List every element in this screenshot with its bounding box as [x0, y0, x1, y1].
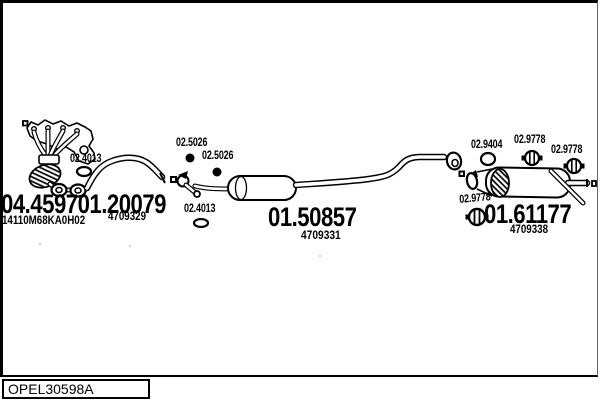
label-hanger-b: 02.9778 — [551, 144, 582, 157]
gasket-ring-icon — [194, 219, 208, 227]
label-gasket-front: 02.4013 — [70, 153, 101, 166]
gasket-ring-icon — [77, 167, 91, 176]
gasket-ring-icon — [481, 153, 495, 165]
scan-speckle — [129, 245, 131, 247]
joint-donut-icon — [445, 151, 463, 171]
label-mount-b: 02.5026 — [202, 150, 233, 163]
label-ring-gasket: 02.9404 — [471, 139, 502, 152]
bolt-icon — [23, 121, 28, 126]
silencer-end-cap — [491, 169, 509, 197]
part-number-centre-silencer: 01.50857 — [268, 204, 356, 231]
bolt-icon — [460, 172, 465, 177]
bolt-icon — [171, 177, 176, 182]
ref-code-front: 4709329 — [108, 211, 146, 224]
rubber-hanger-icon — [564, 159, 585, 173]
catalog-code: OPEL30598A — [8, 381, 94, 397]
catalog-diagram-page: { "diagram": { "type": "exhaust-system-p… — [0, 0, 600, 400]
catalog-code-box: OPEL30598A — [2, 379, 150, 399]
ref-code-rear: 4709338 — [510, 224, 548, 237]
bolt-icon — [592, 181, 596, 186]
label-gasket-mid: 02.4013 — [184, 203, 215, 216]
rubber-mount-dot-icon — [213, 168, 222, 177]
label-hanger-a: 02.9778 — [514, 134, 545, 147]
label-mount-a: 02.5026 — [176, 137, 207, 150]
ref-code-centre: 4709331 — [301, 229, 341, 242]
rear-pipe-drawing — [296, 151, 464, 185]
rubber-hanger-icon — [522, 151, 543, 165]
centre-silencer-drawing — [228, 176, 296, 200]
oem-code-front: 14110M68KA0H02 — [2, 215, 85, 228]
scan-speckle — [319, 255, 321, 257]
collector-flange — [39, 155, 59, 164]
scan-speckle — [39, 243, 41, 245]
rubber-mount-dot-icon — [186, 154, 195, 163]
